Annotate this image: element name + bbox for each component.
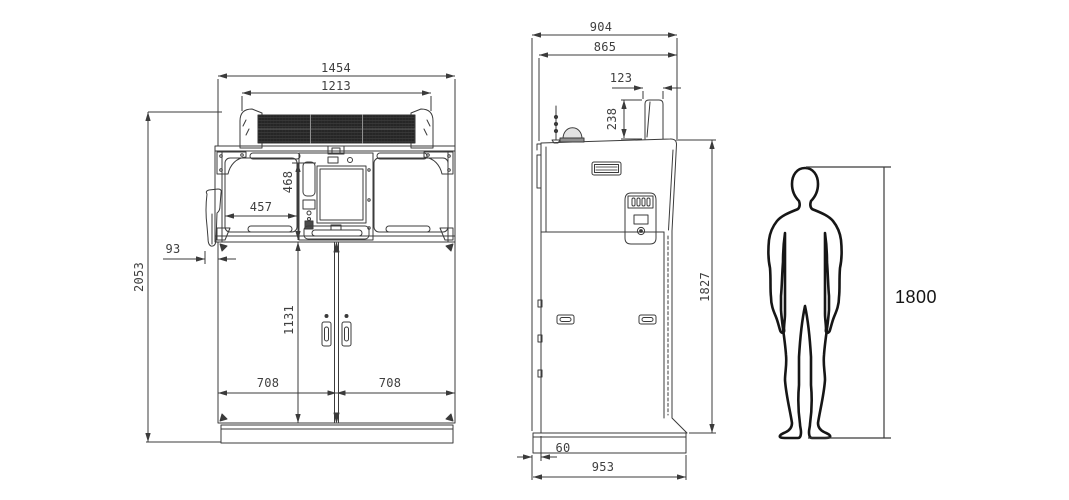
front-right-panel	[374, 158, 448, 232]
front-left-panel	[225, 158, 297, 232]
side-view-dimensions	[517, 35, 716, 480]
dim-label-overall-width: 1454	[321, 62, 351, 74]
drawing-linework	[0, 0, 1069, 500]
dim-label-body-depth: 865	[594, 41, 617, 53]
dim-label-grille-width: 1213	[321, 80, 351, 92]
side-view-body	[533, 100, 687, 453]
front-grille	[240, 109, 433, 148]
dim-label-console-panel-height: 468	[282, 171, 294, 194]
side-slot-handles	[557, 315, 656, 324]
side-antenna	[552, 106, 560, 143]
side-vent-louvre	[592, 162, 621, 175]
front-upper-section	[215, 146, 455, 242]
dim-label-left-panel-width: 457	[250, 201, 273, 213]
front-doors	[218, 242, 455, 423]
dim-label-overall-height: 2053	[133, 262, 145, 292]
dim-label-body-height: 1827	[699, 272, 711, 302]
dim-label-right-door-width: 708	[379, 377, 402, 389]
front-base	[221, 425, 453, 443]
side-canopy	[645, 100, 663, 139]
front-console	[299, 153, 373, 240]
front-holster	[206, 189, 221, 246]
drawing-canvas: 1454 1213 2053 468 457 93 1131 708 708 9…	[0, 0, 1069, 500]
side-beacon-light	[560, 128, 584, 142]
dim-label-human-height: 1800	[895, 288, 937, 306]
dim-label-canopy-depth: 123	[610, 72, 633, 84]
door-handles	[322, 315, 351, 347]
dim-label-base-depth: 953	[592, 461, 615, 473]
human-height-dimension	[806, 167, 891, 438]
dim-label-base-rear-offset: 60	[555, 442, 570, 454]
dim-label-holster-offset: 93	[165, 243, 180, 255]
human-silhouette	[768, 168, 841, 438]
dim-label-canopy-height: 238	[606, 108, 618, 131]
dim-label-overall-depth: 904	[590, 21, 613, 33]
side-card-terminal	[625, 193, 656, 244]
dim-label-door-height: 1131	[283, 305, 295, 335]
dim-label-left-door-width: 708	[257, 377, 280, 389]
